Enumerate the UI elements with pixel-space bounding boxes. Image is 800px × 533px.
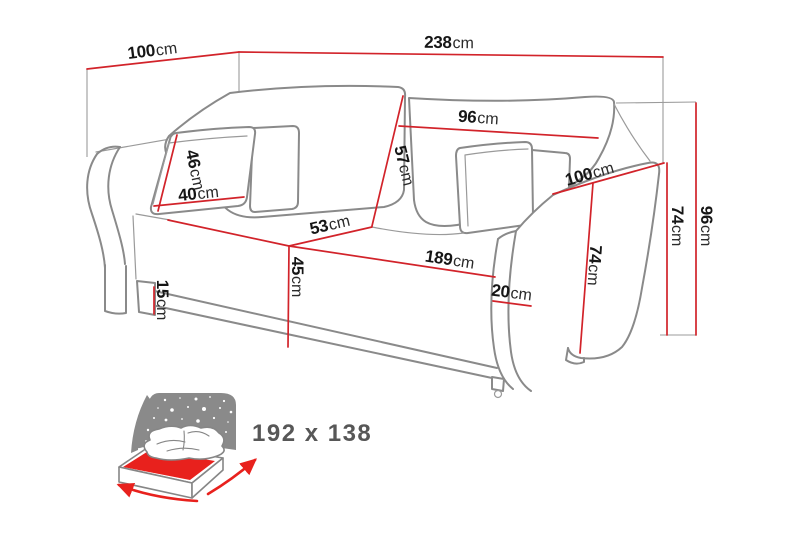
dim-line-seat-front-left — [168, 220, 289, 246]
left-arm-outer-edge — [87, 154, 105, 276]
seat-back-seam — [372, 227, 464, 235]
plinth-top-edge — [150, 290, 497, 368]
left-arm-inner-edge — [108, 147, 125, 264]
dim-label-total-height: 96cm — [697, 206, 716, 247]
sofa-outline — [87, 86, 659, 398]
dim-label-seat-height: 45cm — [288, 257, 307, 298]
plinth-bottom-edge — [147, 290, 492, 378]
dim-label-armrest-height-side: 74cm — [668, 206, 687, 247]
front-right-caster — [495, 391, 502, 398]
dim-label-leg-height: 15cm — [153, 280, 172, 321]
sleeping-area-size: 192 x 138 — [252, 420, 372, 447]
sofa-dimension-diagram: 100cm 238cm 96cm 57cm 46cm 40cm 53cm 189… — [0, 0, 800, 533]
diagram-svg: 100cm 238cm 96cm 57cm 46cm 40cm 53cm 189… — [0, 0, 800, 533]
front-right-leg — [492, 377, 504, 391]
dim-label-seat-length: 189cm — [424, 246, 476, 272]
dim-label-seat-depth: 53cm — [308, 211, 352, 239]
back-right-corner-line — [614, 104, 650, 161]
dim-line-width-total — [239, 52, 663, 57]
front-left-leg — [137, 281, 155, 315]
left-arm-foot — [105, 265, 126, 314]
seat-edge-left — [136, 214, 170, 220]
ref-line-height-top — [616, 102, 696, 103]
bed-icon — [119, 393, 255, 501]
sleeping-area: 192 x 138 — [119, 393, 372, 501]
dim-label-width-total: 238cm — [424, 33, 474, 53]
body-left-edge — [133, 216, 136, 279]
pillow-left-back — [250, 126, 299, 212]
